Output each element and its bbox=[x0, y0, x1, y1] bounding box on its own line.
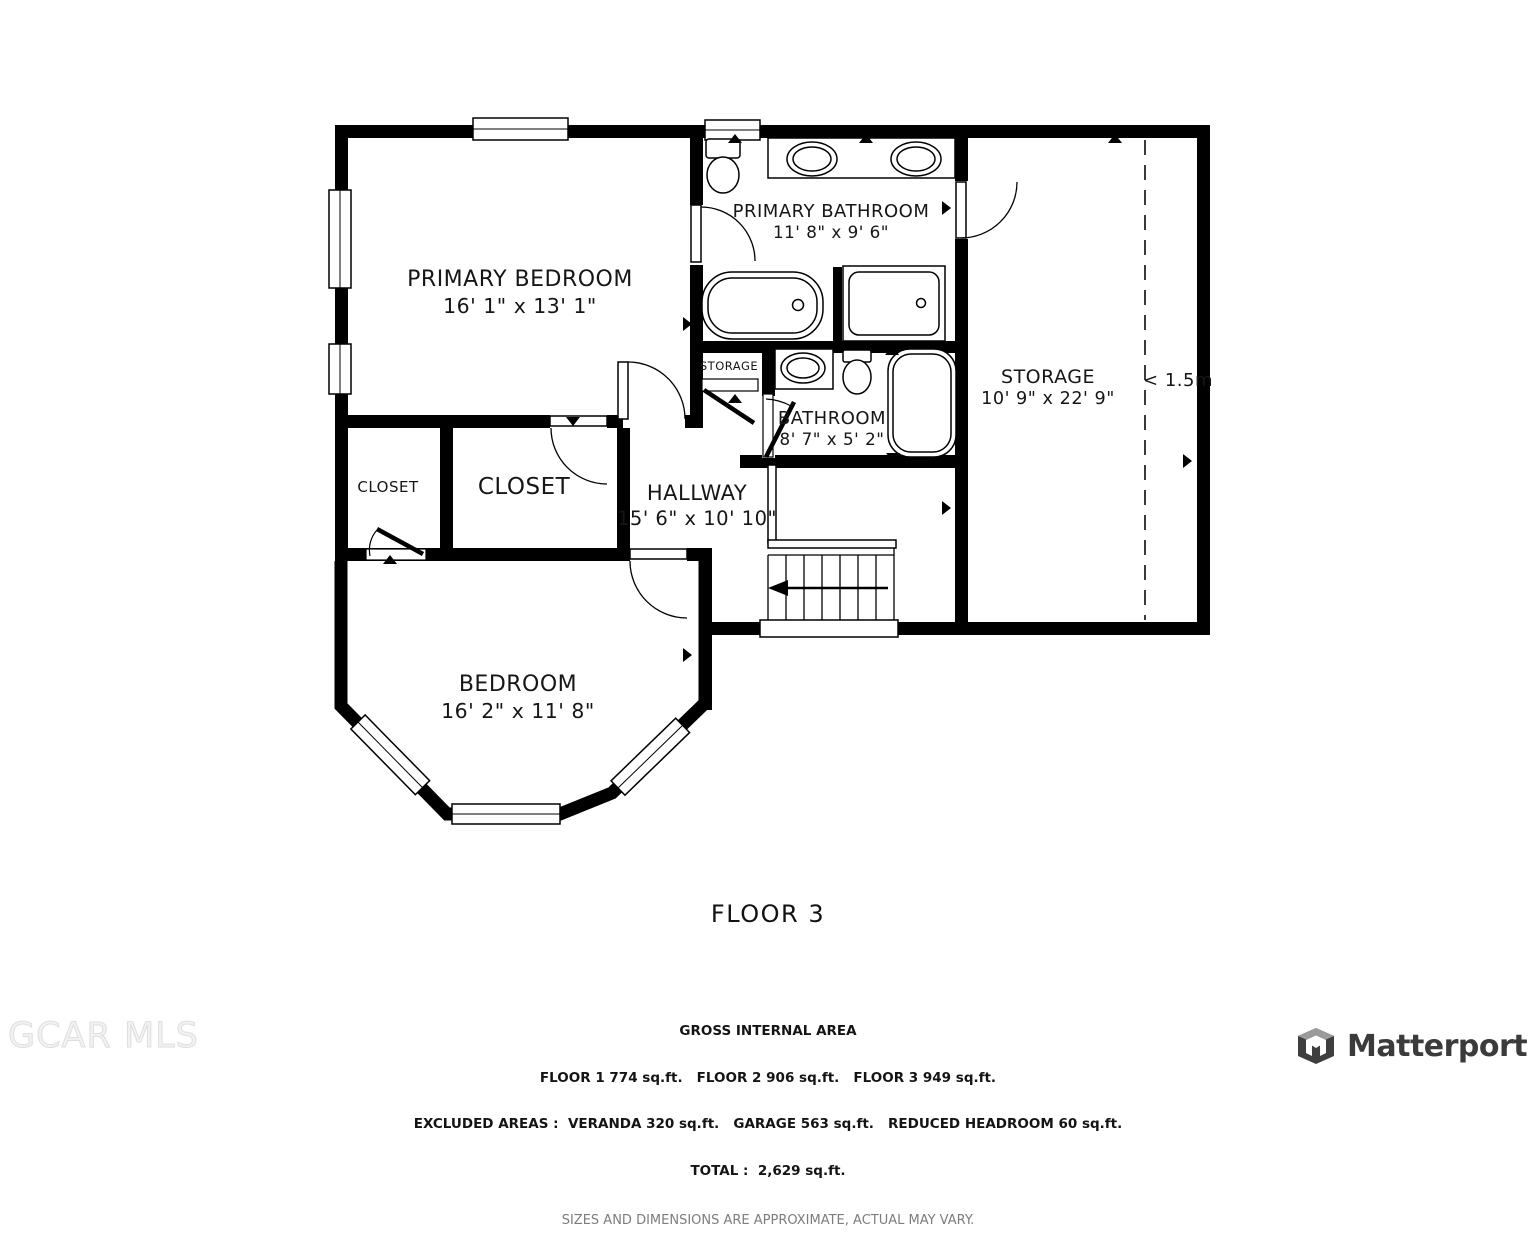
vanity-small bbox=[775, 349, 833, 389]
door-bedroom bbox=[630, 548, 687, 618]
bedroom-name: BEDROOM bbox=[441, 672, 595, 698]
window-top-bedroom bbox=[473, 118, 568, 140]
area-summary: GROSS INTERNAL AREA FLOOR 1 774 sq.ft. F… bbox=[414, 993, 1123, 1244]
headroom-label: < 1.5m bbox=[1143, 370, 1213, 391]
stair-direction-arrow bbox=[768, 580, 888, 596]
mls-watermark: GCAR MLS bbox=[8, 1016, 199, 1056]
door-closet-small-bifold bbox=[366, 529, 426, 560]
room-label-closet-small: CLOSET bbox=[357, 479, 418, 497]
room-label-storage-closet: STORAGE bbox=[700, 360, 758, 374]
door-storage bbox=[955, 181, 1017, 239]
room-label-closet-large: CLOSET bbox=[478, 474, 570, 501]
storage-closet-name: STORAGE bbox=[700, 360, 758, 374]
primary-bathroom-name: PRIMARY BATHROOM bbox=[733, 201, 930, 222]
closet-small-name: CLOSET bbox=[357, 479, 418, 497]
stairs bbox=[760, 465, 898, 637]
gross-internal-area-title: GROSS INTERNAL AREA bbox=[414, 1024, 1123, 1040]
room-label-storage: STORAGE 10' 9" x 22' 9" bbox=[981, 366, 1115, 410]
primary-bedroom-dims: 16' 1" x 13' 1" bbox=[407, 294, 633, 318]
bathtub-primary bbox=[702, 272, 823, 339]
bathroom-dims: 8' 7" x 5' 2" bbox=[778, 430, 886, 450]
toilet-primary bbox=[706, 139, 740, 193]
floor-title: FLOOR 3 bbox=[711, 900, 825, 928]
room-label-bedroom: BEDROOM 16' 2" x 11' 8" bbox=[441, 672, 595, 723]
door-primary-bedroom bbox=[618, 362, 685, 428]
toilet-small bbox=[843, 350, 871, 394]
window-left-upper bbox=[329, 190, 351, 288]
total-area-line: TOTAL : 2,629 sq.ft. bbox=[414, 1164, 1123, 1180]
matterport-wordmark: Matterport bbox=[1347, 1029, 1527, 1064]
window-bay-right bbox=[611, 718, 690, 795]
disclaimer-text: SIZES AND DIMENSIONS ARE APPROXIMATE, AC… bbox=[414, 1213, 1123, 1229]
primary-bedroom-name: PRIMARY BEDROOM bbox=[407, 267, 633, 293]
room-label-bathroom: BATHROOM 8' 7" x 5' 2" bbox=[778, 408, 886, 450]
primary-bathroom-dims: 11' 8" x 9' 6" bbox=[733, 223, 930, 243]
stair-wall-opening bbox=[760, 620, 898, 637]
bedroom-dims: 16' 2" x 11' 8" bbox=[441, 699, 595, 723]
hallway-name: HALLWAY bbox=[617, 481, 777, 506]
closet-large-name: CLOSET bbox=[478, 474, 570, 501]
storage-dims: 10' 9" x 22' 9" bbox=[981, 389, 1115, 410]
window-bay-left bbox=[351, 715, 430, 795]
double-vanity bbox=[768, 138, 955, 178]
window-top-bathroom bbox=[705, 120, 760, 140]
matterport-icon bbox=[1294, 1026, 1338, 1066]
hallway-dims: 15' 6" x 10' 10" bbox=[617, 507, 777, 530]
storage-name: STORAGE bbox=[981, 366, 1115, 388]
window-bay-bottom bbox=[452, 804, 560, 824]
shower bbox=[843, 266, 945, 341]
room-label-primary-bedroom: PRIMARY BEDROOM 16' 1" x 13' 1" bbox=[407, 267, 633, 318]
stair-rail-horizontal bbox=[768, 540, 896, 548]
window-left-lower bbox=[329, 344, 351, 394]
bathroom-name: BATHROOM bbox=[778, 408, 886, 429]
headroom-text: < 1.5m bbox=[1143, 370, 1213, 391]
floors-areas-line: FLOOR 1 774 sq.ft. FLOOR 2 906 sq.ft. FL… bbox=[414, 1071, 1123, 1087]
room-label-primary-bathroom: PRIMARY BATHROOM 11' 8" x 9' 6" bbox=[733, 201, 930, 243]
bathtub-small bbox=[888, 349, 956, 457]
excluded-areas-line: EXCLUDED AREAS : VERANDA 320 sq.ft. GARA… bbox=[414, 1117, 1123, 1133]
matterport-logo: Matterport bbox=[1294, 1026, 1527, 1066]
room-label-hallway: HALLWAY 15' 6" x 10' 10" bbox=[617, 481, 777, 530]
